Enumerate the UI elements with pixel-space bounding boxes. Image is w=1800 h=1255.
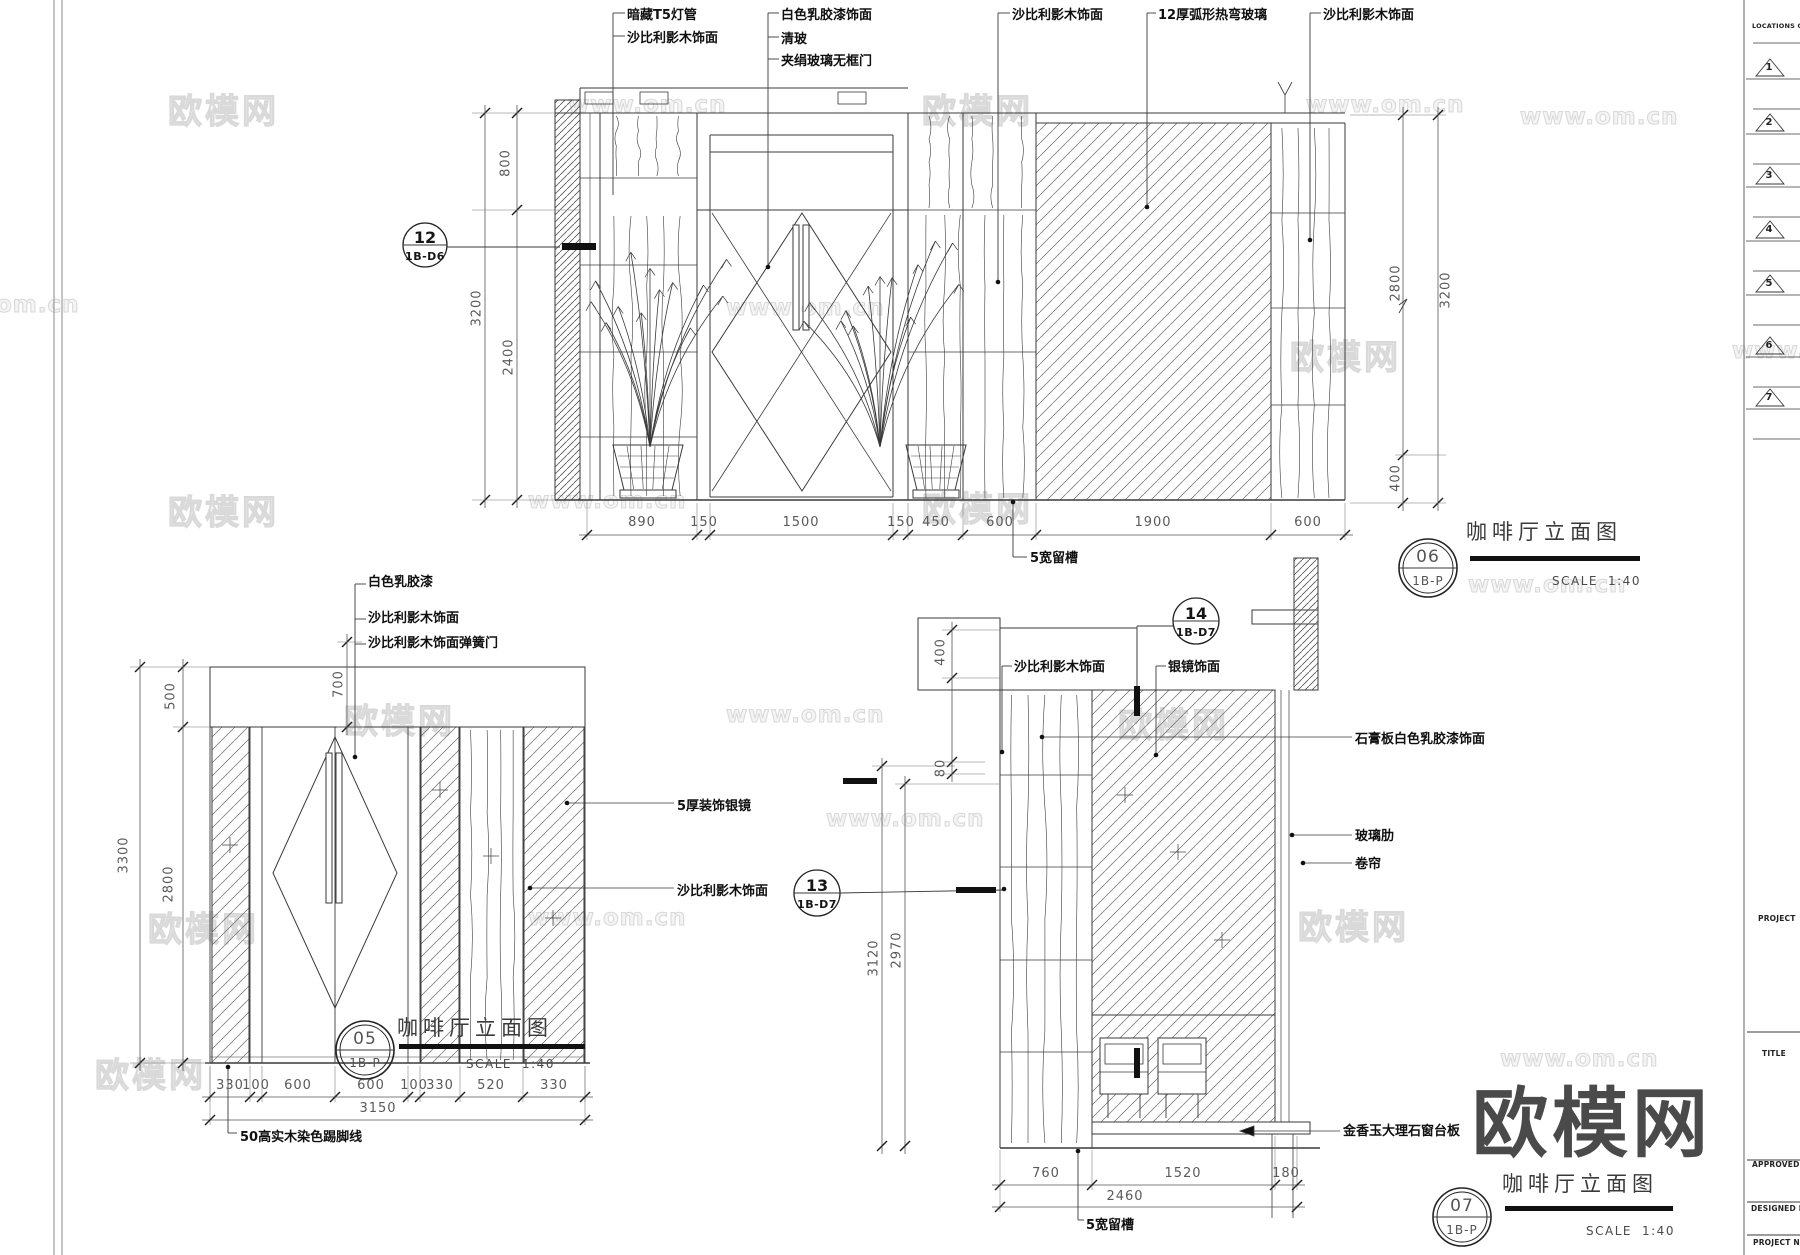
- cad-sheet: 欧模网 www.om.cn 欧模网 www.om.cn www.om.cn om…: [0, 0, 1800, 1255]
- om-logo: 欧模网: [1472, 1062, 1712, 1172]
